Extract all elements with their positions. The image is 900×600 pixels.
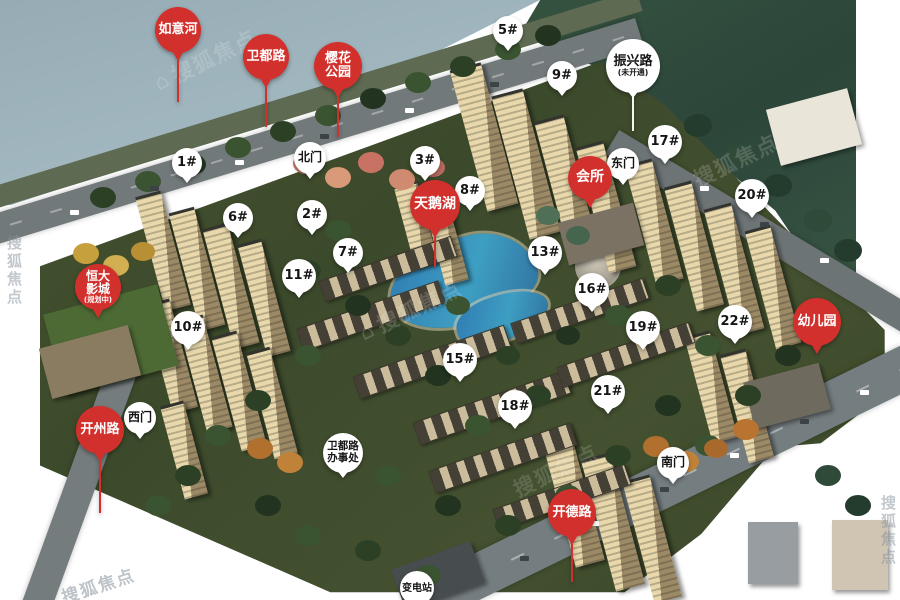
pin-kaizhou-road[interactable]: 开州路 — [76, 406, 124, 513]
pin-balloon: 6# — [223, 203, 253, 233]
pin-balloon: 22# — [718, 305, 752, 339]
pin-swan-lake[interactable]: 天鹅湖 — [410, 180, 460, 267]
tower-block — [160, 401, 208, 500]
pin-label: 20# — [738, 189, 767, 203]
pin-balloon: 16# — [575, 273, 609, 307]
pin-building-20[interactable]: 20# — [735, 179, 769, 218]
pin-sakura-park[interactable]: 樱花公园 — [314, 42, 362, 137]
pin-weidu-road[interactable]: 卫都路 — [243, 34, 289, 127]
pin-label: 开州路 — [80, 423, 119, 437]
pin-label: 7# — [338, 246, 358, 260]
pin-balloon: 5# — [493, 16, 523, 46]
pin-balloon: 2# — [297, 200, 327, 230]
pin-label: 9# — [552, 69, 572, 83]
pin-label: 会所 — [576, 170, 604, 185]
pin-balloon: 幼儿园 — [793, 298, 841, 346]
watermark: 搜狐焦点 — [58, 561, 138, 600]
pin-building-1[interactable]: 1# — [172, 148, 202, 183]
pin-label: 振兴路 — [613, 55, 652, 69]
villa-row — [352, 325, 511, 400]
pin-balloon: 15# — [443, 343, 477, 377]
pin-balloon: 如意河 — [155, 7, 201, 53]
pin-balloon: 开州路 — [76, 406, 124, 454]
pin-building-22[interactable]: 22# — [718, 305, 752, 344]
pin-north-gate[interactable]: 北门 — [294, 142, 326, 179]
pin-building-21[interactable]: 21# — [591, 375, 625, 414]
watermark-text: 搜狐焦点 — [58, 561, 138, 600]
pin-building-3[interactable]: 3# — [410, 146, 440, 181]
pin-label: 开德路 — [552, 506, 591, 520]
pin-needle — [434, 237, 436, 267]
masterplan-map: ⌂ 搜狐焦点 搜狐焦点 ⌂ 搜狐焦点 搜狐焦点 搜狐焦点 搜狐焦点 搜狐焦点 搜… — [0, 0, 900, 600]
pin-balloon: 开德路 — [548, 489, 596, 537]
pin-building-10[interactable]: 10# — [171, 311, 205, 350]
pin-balloon: 18# — [498, 390, 532, 424]
canvas-edge — [0, 205, 40, 600]
pin-kindergarten[interactable]: 幼儿园 — [793, 298, 841, 354]
pin-label: 5# — [498, 24, 518, 38]
pin-needle — [571, 544, 573, 582]
pin-balloon: 3# — [410, 146, 440, 176]
pin-label: 3# — [415, 154, 435, 168]
pin-balloon: 变电站 — [400, 571, 434, 600]
pin-balloon: 樱花公园 — [314, 42, 362, 90]
pin-balloon: 西门 — [124, 402, 156, 434]
pin-balloon: 10# — [171, 311, 205, 345]
warehouse-building — [766, 88, 862, 166]
pin-needle — [337, 97, 339, 137]
pin-label: 东门 — [611, 157, 635, 170]
pin-label: 11# — [285, 269, 314, 283]
pin-label: (未开通) — [618, 69, 649, 78]
pin-hengda-cinema[interactable]: 恒大影城(规划中) — [75, 264, 121, 318]
pin-label: 13# — [531, 246, 560, 260]
pin-label: 公园 — [325, 66, 351, 80]
pin-label: 南门 — [661, 456, 685, 469]
pin-label: 6# — [228, 211, 248, 225]
watermark-text: 搜狐焦点 — [4, 235, 25, 307]
pin-label: 北门 — [298, 151, 322, 164]
corner-building-tan — [832, 520, 888, 590]
pin-south-gate[interactable]: 南门 — [657, 447, 689, 484]
pin-building-11[interactable]: 11# — [282, 259, 316, 298]
pin-building-9[interactable]: 9# — [547, 61, 577, 96]
pin-label: 17# — [651, 135, 680, 149]
pin-balloon: 会所 — [568, 156, 612, 200]
pin-balloon: 13# — [528, 236, 562, 270]
pin-label: 21# — [594, 385, 623, 399]
pin-clubhouse[interactable]: 会所 — [568, 156, 612, 208]
pin-balloon: 卫都路办事处 — [323, 433, 363, 473]
pin-label: 10# — [174, 321, 203, 335]
pin-balloon: 11# — [282, 259, 316, 293]
pin-building-7[interactable]: 7# — [333, 238, 363, 273]
pin-label: 16# — [578, 283, 607, 297]
pin-label: 幼儿园 — [797, 315, 836, 329]
pin-balloon: 卫都路 — [243, 34, 289, 80]
pin-balloon: 9# — [547, 61, 577, 91]
pin-label: 18# — [501, 400, 530, 414]
pin-building-2[interactable]: 2# — [297, 200, 327, 235]
pin-zhenxing-road[interactable]: 振兴路(未开通) — [606, 39, 660, 131]
pin-balloon: 1# — [172, 148, 202, 178]
pin-label: 西门 — [128, 411, 152, 424]
pin-building-5[interactable]: 5# — [493, 16, 523, 51]
watermark-text: 搜狐焦点 — [878, 60, 899, 132]
pin-building-19[interactable]: 19# — [626, 311, 660, 350]
pin-ruyi-river[interactable]: 如意河 — [155, 7, 201, 102]
pin-label: 如意河 — [158, 23, 197, 37]
pin-label: 15# — [446, 353, 475, 367]
pin-balloon: 天鹅湖 — [410, 180, 460, 230]
pin-building-18[interactable]: 18# — [498, 390, 532, 429]
pin-substation[interactable]: 变电站 — [400, 571, 434, 600]
pin-needle — [177, 60, 179, 102]
pin-label: 天鹅湖 — [414, 197, 456, 212]
pin-balloon: 19# — [626, 311, 660, 345]
watermark: 搜狐焦点 — [878, 60, 899, 132]
pin-needle — [99, 461, 101, 513]
pin-balloon: 7# — [333, 238, 363, 268]
pin-label: 卫都路 — [246, 50, 285, 64]
pin-balloon: 恒大影城(规划中) — [75, 264, 121, 310]
pin-balloon: 振兴路(未开通) — [606, 39, 660, 93]
pin-balloon: 20# — [735, 179, 769, 213]
canvas-edge — [856, 0, 900, 238]
pin-building-13[interactable]: 13# — [528, 236, 562, 275]
cars — [0, 0, 9, 5]
pin-balloon: 南门 — [657, 447, 689, 479]
pin-building-15[interactable]: 15# — [443, 343, 477, 382]
pin-label: 8# — [460, 184, 480, 198]
pin-label: 变电站 — [402, 583, 432, 594]
pin-label: 樱花 — [325, 52, 351, 66]
pin-label: 2# — [302, 208, 322, 222]
pin-needle — [265, 87, 267, 127]
pin-needle — [632, 97, 634, 131]
pin-label: 19# — [629, 321, 658, 335]
pin-label: 办事处 — [327, 453, 359, 465]
corner-building-grey — [748, 522, 798, 584]
pin-balloon: 21# — [591, 375, 625, 409]
pin-weidu-road-office[interactable]: 卫都路办事处 — [323, 433, 363, 478]
pin-label: 22# — [721, 315, 750, 329]
pin-kaide-road[interactable]: 开德路 — [548, 489, 596, 582]
pin-label: (规划中) — [84, 296, 112, 304]
watermark: 搜狐焦点 — [4, 235, 25, 307]
pin-building-16[interactable]: 16# — [575, 273, 609, 312]
pin-balloon: 北门 — [294, 142, 326, 174]
pin-label: 1# — [177, 156, 197, 170]
pin-building-6[interactable]: 6# — [223, 203, 253, 238]
pin-west-gate[interactable]: 西门 — [124, 402, 156, 439]
